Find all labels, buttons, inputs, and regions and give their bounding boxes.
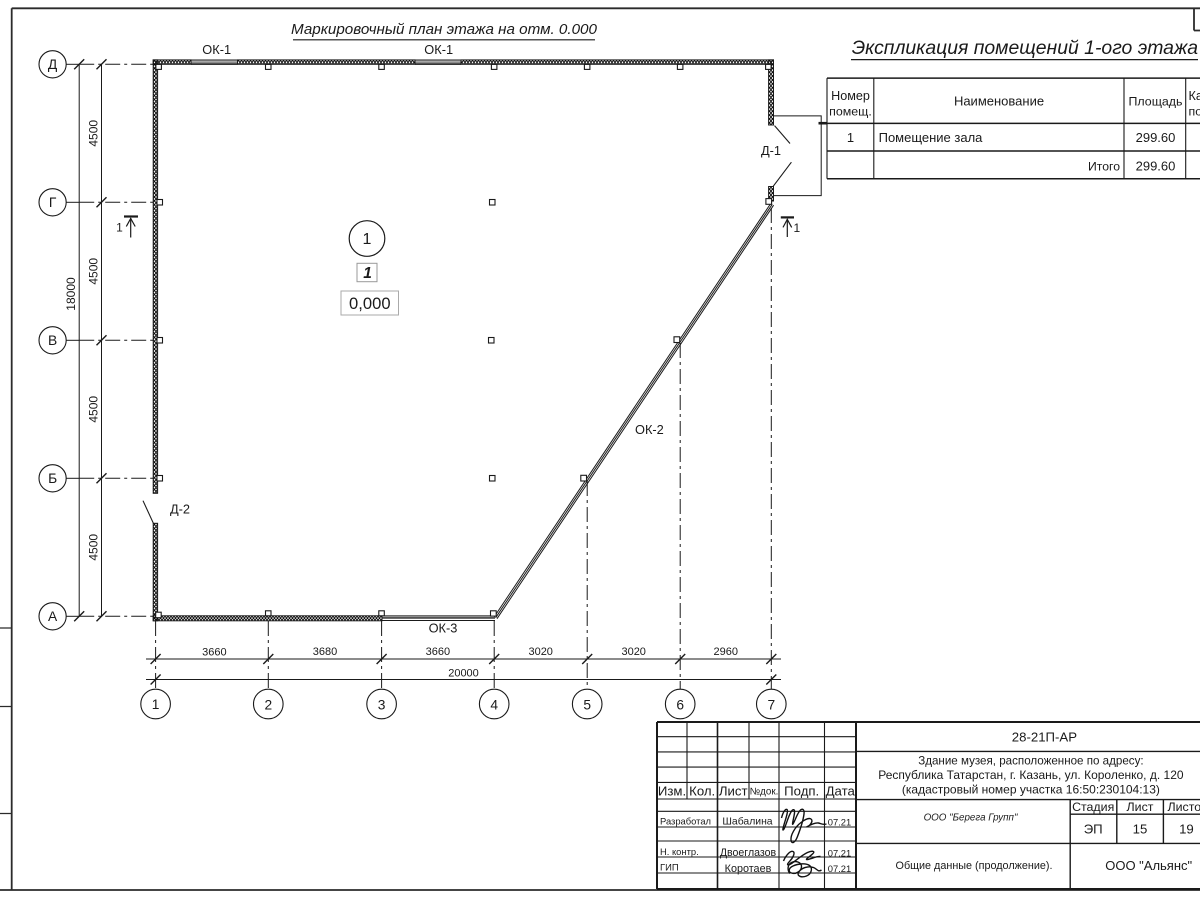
svg-text:ООО "Альянс": ООО "Альянс"	[1105, 858, 1192, 873]
svg-text:Н. контр.: Н. контр.	[660, 846, 699, 857]
svg-text:Наименование: Наименование	[954, 94, 1044, 109]
svg-text:07.21: 07.21	[828, 847, 851, 858]
svg-text:Стадия: Стадия	[1072, 800, 1114, 814]
svg-text:Итого: Итого	[1088, 159, 1120, 173]
svg-text:Площадь: Площадь	[1129, 95, 1183, 109]
svg-text:№док.: №док.	[750, 787, 779, 798]
svg-text:ГИП: ГИП	[660, 861, 679, 872]
svg-text:3: 3	[378, 697, 386, 712]
svg-text:Здание музея, расположенное по: Здание музея, расположенное по адресу:	[918, 755, 1143, 768]
svg-text:Маркировочный план этажа на от: Маркировочный план этажа на отм. 0.000	[291, 21, 597, 38]
svg-text:2960: 2960	[714, 646, 738, 658]
svg-text:3020: 3020	[528, 646, 552, 658]
svg-text:ОК-1: ОК-1	[424, 42, 453, 57]
svg-text:Б: Б	[48, 471, 57, 486]
svg-text:28-21П-АР: 28-21П-АР	[1012, 730, 1077, 745]
svg-text:3020: 3020	[621, 646, 645, 658]
svg-text:Помещение зала: Помещение зала	[879, 130, 984, 145]
svg-text:Подп.: Подп.	[784, 783, 819, 798]
svg-text:20000: 20000	[448, 667, 479, 679]
svg-text:Лист: Лист	[719, 783, 748, 798]
svg-text:Шабалина: Шабалина	[722, 816, 772, 828]
svg-text:4500: 4500	[87, 120, 101, 147]
svg-text:Двоеглазов: Двоеглазов	[720, 847, 777, 859]
svg-text:Экспликация помещений 1-ого эт: Экспликация помещений 1-ого этажа	[852, 37, 1199, 59]
svg-text:ОК-3: ОК-3	[429, 621, 458, 636]
svg-text:Листов: Листов	[1168, 800, 1200, 814]
svg-text:299.60: 299.60	[1136, 158, 1176, 173]
svg-text:ОК-2: ОК-2	[635, 422, 664, 437]
svg-text:В: В	[48, 333, 57, 348]
svg-text:6: 6	[676, 697, 684, 712]
svg-text:1: 1	[794, 221, 801, 235]
svg-text:1: 1	[363, 265, 372, 282]
svg-text:Д-1: Д-1	[761, 143, 781, 158]
svg-text:299.60: 299.60	[1136, 130, 1176, 145]
svg-text:Ка: Ка	[1189, 89, 1200, 103]
svg-text:Разработал: Разработал	[660, 815, 711, 826]
svg-text:19: 19	[1179, 822, 1194, 837]
svg-text:Лист: Лист	[1127, 800, 1154, 814]
svg-text:15: 15	[1133, 822, 1148, 837]
svg-text:А: А	[48, 609, 58, 624]
svg-text:помещ.: помещ.	[829, 105, 872, 119]
svg-text:Д-2: Д-2	[170, 502, 190, 517]
svg-text:Кол.: Кол.	[689, 783, 715, 798]
svg-text:0,000: 0,000	[349, 294, 391, 313]
svg-text:ОК-1: ОК-1	[202, 42, 231, 57]
svg-text:5: 5	[583, 697, 591, 712]
svg-text:18000: 18000	[64, 277, 78, 311]
svg-text:3680: 3680	[313, 646, 337, 658]
svg-text:3660: 3660	[426, 646, 450, 658]
svg-text:Республика Татарстан, г. Казан: Республика Татарстан, г. Казань, ул. Кор…	[878, 768, 1184, 782]
svg-text:1: 1	[363, 231, 372, 248]
svg-text:ООО "Берега Групп": ООО "Берега Групп"	[924, 813, 1018, 824]
svg-text:Г: Г	[49, 195, 57, 210]
svg-text:Д: Д	[48, 57, 58, 72]
svg-text:Дата: Дата	[826, 783, 856, 798]
svg-text:Общие данные (продолжение).: Общие данные (продолжение).	[896, 860, 1053, 872]
svg-text:Коротаев: Коротаев	[725, 863, 772, 875]
svg-text:1: 1	[847, 130, 854, 145]
svg-text:3660: 3660	[202, 647, 226, 659]
svg-text:ЭП: ЭП	[1084, 822, 1103, 837]
svg-text:4500: 4500	[87, 396, 101, 423]
svg-text:7: 7	[767, 697, 775, 712]
svg-text:1: 1	[116, 221, 123, 235]
svg-text:4500: 4500	[87, 258, 101, 285]
svg-text:(кадастровый номер участка 16:: (кадастровый номер участка 16:50:230104:…	[902, 783, 1160, 797]
svg-text:07.21: 07.21	[828, 816, 851, 827]
svg-text:4500: 4500	[87, 534, 101, 561]
svg-text:по: по	[1189, 105, 1200, 119]
svg-text:07.21: 07.21	[828, 863, 851, 874]
svg-text:1: 1	[152, 697, 160, 712]
svg-text:Номер: Номер	[831, 89, 870, 103]
svg-text:Изм.: Изм.	[658, 783, 686, 798]
svg-text:2: 2	[264, 697, 272, 712]
svg-text:4: 4	[490, 697, 498, 712]
